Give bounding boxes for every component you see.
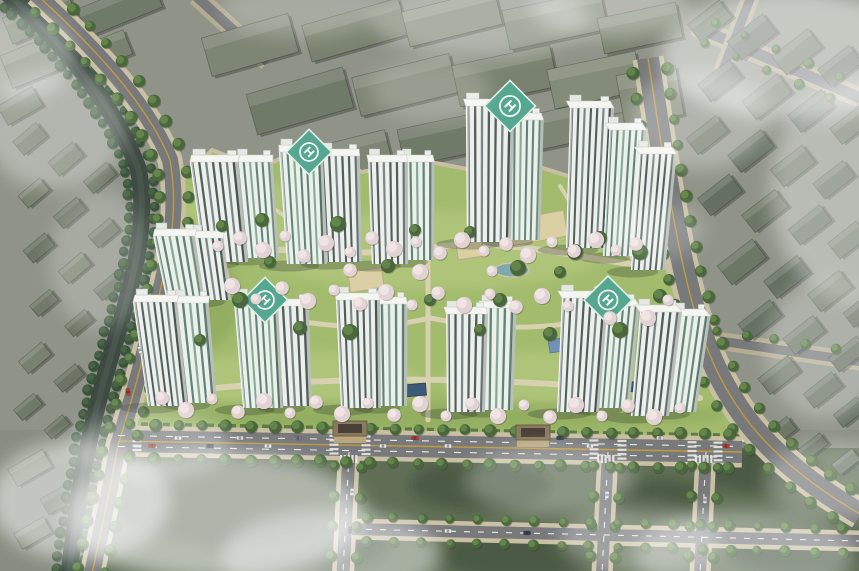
crosswalk-stripe [714,455,723,457]
tree-highlight [341,457,349,465]
tree-highlight [119,160,125,166]
tree-highlight [487,266,494,273]
tree-highlight [146,150,154,158]
tree-highlight [696,266,703,273]
tree-highlight [723,463,731,471]
roof-penthouse [369,149,379,155]
tree-highlight [207,394,214,401]
tree-highlight [147,164,153,170]
tree-highlight [315,455,323,463]
tree-highlight [280,231,287,238]
tree-highlight [310,396,318,404]
tree-highlight [379,285,389,295]
crosswalk-stripe [714,450,723,452]
tree-highlight [357,463,363,469]
crosswalk-stripe [330,452,339,454]
tree-highlight [391,425,398,432]
car [294,436,301,440]
tree-highlight [641,311,651,321]
tree-highlight [407,300,414,307]
crosswalk-stripe [590,439,599,441]
tree-highlight [182,166,190,174]
tree-highlight [119,359,125,365]
tree-highlight [382,260,391,269]
tree-highlight [153,169,161,177]
tree-highlight [441,411,448,418]
tree-highlight [485,425,493,433]
tree-highlight [457,298,467,308]
roof-penthouse [561,285,573,291]
crosswalk-stripe [330,448,339,450]
tree-highlight [388,409,396,417]
tree-highlight [95,351,101,357]
roof-equipment [369,289,377,294]
tree-highlight [647,410,657,420]
crosswalk-stripe [362,444,371,446]
crosswalk-stripe [362,453,371,455]
tree-highlight [447,540,453,546]
tree-highlight [344,264,352,272]
tree-highlight [123,180,129,186]
tree-highlight [116,375,124,383]
tree-highlight [366,232,374,240]
tree-highlight [699,462,706,469]
tree-highlight [116,56,124,64]
tower-roof [190,155,240,162]
tree-highlight [485,289,492,296]
aerial-rendering: HHHH [0,0,859,571]
crosswalk-stripe [695,455,697,463]
roof-equipment [533,109,540,114]
tree-highlight [535,289,545,299]
tree-highlight [582,428,589,435]
tree-highlight [521,248,531,258]
tree-highlight [837,524,844,531]
crosswalk-stripe [618,444,627,446]
tree-highlight [89,362,96,369]
car-windshield [126,390,129,393]
fog-patch [630,70,770,170]
tree-highlight [213,241,220,248]
tree-highlight [0,3,7,10]
tree-highlight [432,287,440,295]
tree-highlight [98,339,105,346]
tree-highlight [500,539,507,546]
car [556,436,563,440]
tree-highlight [622,400,630,408]
crosswalk-stripe [714,459,723,461]
entrance-gate [516,425,550,447]
tree-highlight [425,295,432,302]
tree-highlight [52,564,59,571]
tree-highlight [502,516,509,523]
tower-facade-stripe [430,162,434,260]
tree-highlight [365,457,372,464]
tree-highlight [126,322,133,329]
tree-highlight [270,422,278,430]
tree-highlight [125,354,132,361]
tree-highlight [410,225,417,232]
tree-highlight [438,425,445,432]
tree-highlight [225,279,235,289]
tree-highlight [109,392,116,399]
tree-highlight [292,421,300,429]
crosswalk-stripe [362,449,371,451]
tree-highlight [611,245,618,252]
roof-equipment [186,225,194,230]
crosswalk-stripe [330,444,339,446]
fog-patch [465,445,635,515]
tree-highlight [160,116,168,124]
car [444,529,451,533]
tree-highlight [712,493,719,500]
roof-penthouse [193,149,206,155]
crosswalk-stripe [714,446,723,448]
tree-highlight [414,425,420,431]
tree-highlight [681,191,689,199]
tree-highlight [700,429,707,436]
tree-highlight [120,346,127,353]
crosswalk-stripe [688,441,697,443]
crosswalk-stripe [710,455,712,463]
tower-roof [235,155,273,162]
car [264,444,271,448]
roof-equipment [476,303,484,308]
tower-roof [635,305,682,312]
tree-highlight [568,245,576,253]
tree-highlight [153,214,160,221]
car-windshield [297,436,299,439]
fog-patch [70,410,230,480]
tree-highlight [500,238,508,246]
tree-highlight [276,282,284,290]
tree-highlight [330,461,336,467]
car-windshield [526,531,528,534]
car-windshield [659,436,661,439]
tree-highlight [285,408,292,415]
tree-highlight [87,374,94,381]
tree-highlight [102,39,108,45]
tree-highlight [511,261,521,271]
tree-highlight [688,461,694,467]
tree-highlight [653,428,660,435]
tree-highlight [234,232,242,240]
tree-highlight [126,112,134,120]
car [703,496,707,503]
tree-highlight [473,515,479,521]
tree-highlight [740,383,747,390]
tree-highlight [251,294,258,301]
tower-facade-stripe [403,162,408,264]
tree-highlight [544,328,553,337]
crosswalk-stripe [355,455,357,463]
tree-highlight [629,428,636,435]
tree-highlight [653,463,660,470]
tree-highlight [569,398,579,408]
fog-patch [370,60,490,120]
tree-highlight [675,428,683,436]
tree-highlight [460,425,467,432]
tree-highlight [466,398,474,406]
tree-highlight [301,294,311,304]
tree-highlight [558,427,566,435]
tree-highlight [743,331,749,337]
tree-highlight [663,295,670,302]
crosswalk-stripe [706,455,708,463]
tower-roof [367,155,408,162]
roof-penthouse [156,223,167,229]
car-windshield [559,436,561,439]
tree-highlight [319,236,329,246]
tree-highlight [703,291,711,299]
crosswalk-stripe [618,449,627,451]
tree-highlight [563,301,570,308]
tree-highlight [436,459,443,466]
tree-highlight [769,421,776,428]
crosswalk-stripe [699,455,701,463]
roof-equipment [425,151,431,156]
tree-highlight [257,394,267,404]
tree-highlight [179,403,189,413]
car-windshield [447,444,449,447]
crosswalk-stripe [714,442,723,444]
tree-highlight [529,516,536,523]
car [722,444,729,448]
tree-highlight [418,514,424,520]
tree-highlight [597,411,604,418]
tree-highlight [607,428,614,435]
tree-highlight [148,188,155,195]
car [523,531,530,535]
entrance-gate [333,421,367,443]
roof-equipment [397,151,404,156]
tree-highlight [413,397,423,407]
car [586,444,593,448]
roof-penthouse [238,149,248,155]
tree-highlight [68,4,76,12]
roof-equipment [200,292,206,297]
tree-highlight [713,463,719,469]
tree-highlight [331,217,341,227]
tree-highlight [345,247,352,254]
crosswalk-stripe [618,457,627,459]
crosswalk-stripe [688,446,697,448]
roof-penthouse [639,299,650,305]
tree-highlight [479,246,486,253]
car-windshield [725,444,727,447]
tree-highlight [712,401,719,408]
tree-highlight [519,400,526,407]
tree-highlight [627,68,635,76]
roof-equipment [349,145,356,150]
tower-roof [153,229,196,236]
tree-highlight [728,361,735,368]
tree-highlight [317,422,325,430]
fog-patch [615,202,705,258]
tree-highlight [717,338,725,346]
car [444,444,451,448]
tree-highlight [589,233,599,243]
tree-highlight [787,439,795,447]
tree-highlight [73,563,81,571]
car-windshield [414,436,416,439]
tree-highlight [744,445,751,452]
tree-highlight [195,335,202,342]
tree-highlight [85,21,92,28]
tree-highlight [95,74,103,82]
tree-highlight [343,325,353,335]
tree-highlight [675,462,683,470]
tree-highlight [111,399,118,406]
tree-highlight [148,95,156,103]
tree-highlight [256,214,265,223]
tree-highlight [491,409,501,419]
tree-highlight [388,457,395,464]
car-windshield [382,444,384,447]
car [236,436,243,440]
roof-equipment [601,97,609,102]
crosswalk-stripe [618,440,627,442]
tree-highlight [246,421,254,429]
fog-patch [50,190,150,330]
roof-penthouse [447,301,458,307]
tree-highlight [710,315,717,322]
gate-arch [338,424,362,433]
tree-highlight [510,301,518,309]
tree-highlight [413,265,423,275]
tree-highlight [544,411,552,419]
tree-highlight [183,192,190,199]
tree-highlight [155,192,162,199]
tree-highlight [354,298,362,306]
tree-highlight [150,203,156,209]
car-windshield [239,436,241,439]
tree-highlight [675,403,682,410]
tree-highlight [434,247,442,255]
crosswalk-stripe [688,450,697,452]
tree-highlight [335,407,345,417]
tree-highlight [81,58,87,64]
tree-highlight [387,242,397,252]
tree-highlight [329,285,336,292]
tree-highlight [414,459,420,465]
tree-highlight [134,76,142,84]
gate-arch [521,428,545,437]
roof-penthouse [570,95,581,101]
tree-highlight [131,330,138,337]
tree-highlight [298,250,306,258]
tower-facade-stripe [403,304,407,406]
car [379,444,386,448]
tree-highlight [220,420,228,428]
car-windshield [589,444,591,447]
roof-equipment [167,291,175,296]
tree-highlight [121,168,127,174]
tree-highlight [664,275,671,282]
tree-highlight [446,515,452,521]
tree-highlight [654,290,663,299]
car-windshield [703,499,706,502]
roof-penthouse [281,139,292,145]
aerial-rendering-canvas: HHHH [0,0,859,571]
roof-equipment [398,293,404,298]
tree-highlight [547,237,554,244]
tower-facade-stripe [454,314,456,412]
car-windshield [447,529,449,532]
tree-highlight [455,233,465,243]
tree-highlight [183,218,190,225]
tree-highlight [79,410,85,416]
tree-highlight [217,221,224,228]
tree-highlight [411,237,418,244]
tower-roof [173,296,209,303]
tree-highlight [724,429,732,437]
tree-highlight [559,518,565,524]
tree-highlight [363,398,370,405]
roof-equipment [227,151,236,156]
car-windshield [267,444,269,447]
tree-highlight [82,398,88,404]
tree-highlight [123,190,130,197]
tree-highlight [604,312,612,320]
tree-highlight [528,540,535,547]
roof-penthouse [609,117,619,123]
tree-highlight [256,243,266,253]
tree-highlight [472,539,478,545]
tree-highlight [232,406,240,414]
tree-highlight [136,130,144,138]
tree-highlight [173,139,181,147]
roof-equipment [698,305,704,310]
tree-highlight [713,327,719,333]
car [656,436,663,440]
tower-facade-stripe [481,106,484,242]
roof-equipment [263,151,270,156]
tree-highlight [83,385,90,392]
tower-roof [566,101,614,108]
tree-highlight [294,322,303,331]
tree-highlight [755,403,762,410]
tree-highlight [462,460,469,467]
tree-highlight [156,392,164,400]
tree-highlight [687,491,694,498]
tree-highlight [475,325,482,332]
crosswalk-stripe [618,453,627,455]
car [411,436,418,440]
tree-highlight [555,267,562,274]
